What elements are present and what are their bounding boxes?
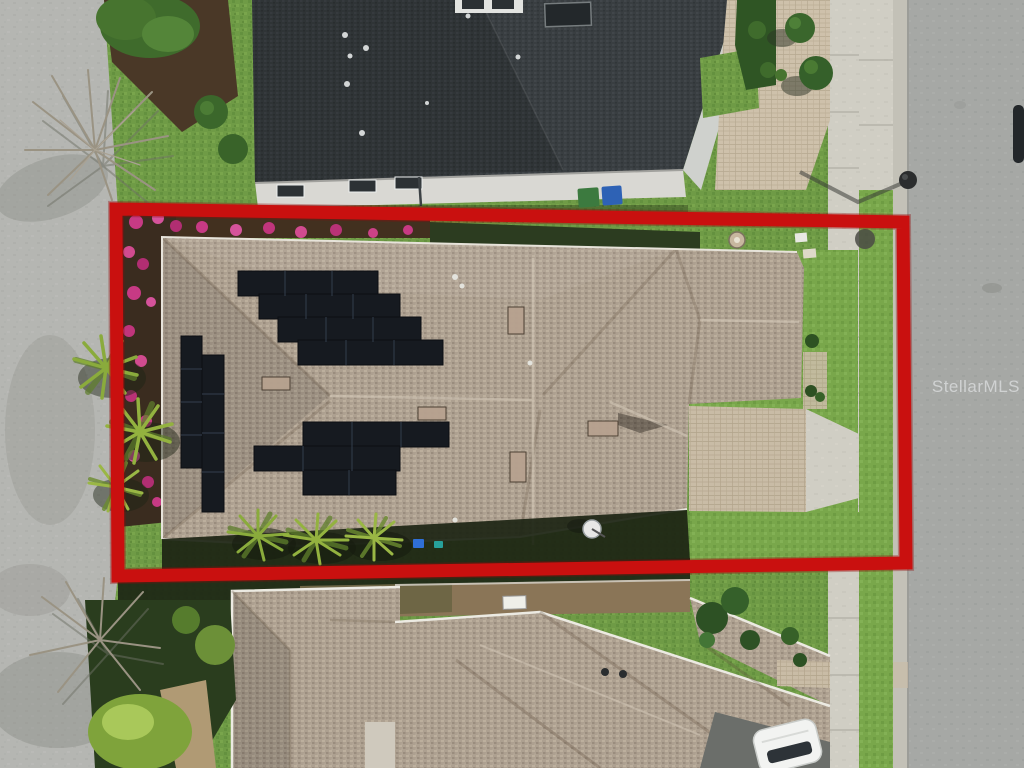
aerial-photo: StellarMLS	[0, 0, 1024, 768]
lanai-skylight	[503, 596, 526, 610]
parkway-grass	[859, 190, 893, 768]
blue-bucket	[413, 539, 424, 548]
blue-trash-bin	[601, 185, 622, 205]
topiary-ball	[799, 56, 833, 90]
utility-pad	[803, 248, 817, 258]
skylight-hatch	[545, 2, 592, 27]
parked-car-edge	[1013, 105, 1024, 163]
subject-property	[120, 212, 859, 572]
teal-bucket	[434, 541, 443, 548]
topiary-ball	[785, 13, 815, 43]
manhole-cover	[855, 229, 875, 249]
aerial-photo-canvas: StellarMLS	[0, 0, 1024, 768]
utility-pad	[795, 232, 808, 242]
green-trash-bin	[577, 187, 599, 207]
stellar-mls-watermark: StellarMLS	[932, 377, 1020, 396]
